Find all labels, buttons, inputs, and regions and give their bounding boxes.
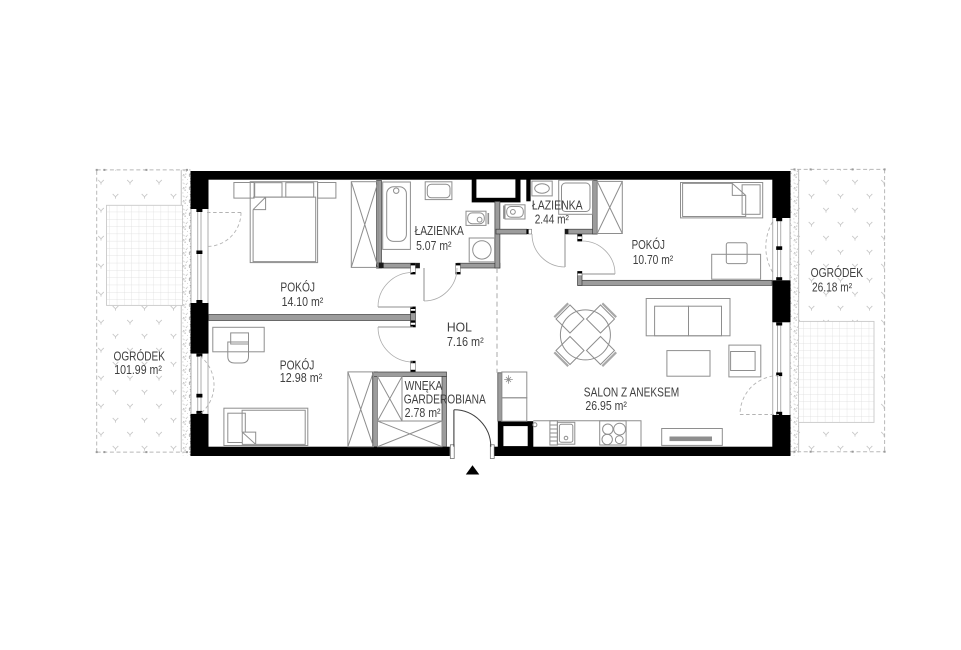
svg-text:7.16 m²: 7.16 m² bbox=[447, 335, 484, 349]
svg-text:5.07 m²: 5.07 m² bbox=[416, 239, 451, 253]
svg-text:WNĘKA: WNĘKA bbox=[405, 379, 443, 393]
svg-text:SALON Z ANEKSEM: SALON Z ANEKSEM bbox=[584, 385, 679, 399]
svg-text:ŁAZIENKA: ŁAZIENKA bbox=[415, 224, 465, 238]
svg-text:ŁAZIENKA: ŁAZIENKA bbox=[532, 199, 583, 213]
svg-text:12.98 m²: 12.98 m² bbox=[280, 371, 323, 385]
svg-text:26.95 m²: 26.95 m² bbox=[585, 399, 627, 413]
svg-text:2.78 m²: 2.78 m² bbox=[405, 406, 441, 420]
svg-text:POKÓJ: POKÓJ bbox=[632, 237, 665, 252]
svg-text:10.70 m²: 10.70 m² bbox=[633, 253, 674, 267]
svg-text:26.18 m²: 26.18 m² bbox=[812, 280, 852, 294]
svg-text:OGRÓDEK: OGRÓDEK bbox=[114, 348, 166, 363]
svg-text:101.99 m²: 101.99 m² bbox=[114, 363, 162, 377]
svg-text:HOL: HOL bbox=[447, 321, 472, 335]
svg-text:14.10 m²: 14.10 m² bbox=[282, 295, 324, 309]
svg-text:POKÓJ: POKÓJ bbox=[280, 279, 315, 294]
svg-text:2.44 m²: 2.44 m² bbox=[535, 213, 569, 227]
svg-text:OGRÓDEK: OGRÓDEK bbox=[811, 265, 864, 280]
svg-text:GARDEROBIANA: GARDEROBIANA bbox=[404, 393, 487, 407]
